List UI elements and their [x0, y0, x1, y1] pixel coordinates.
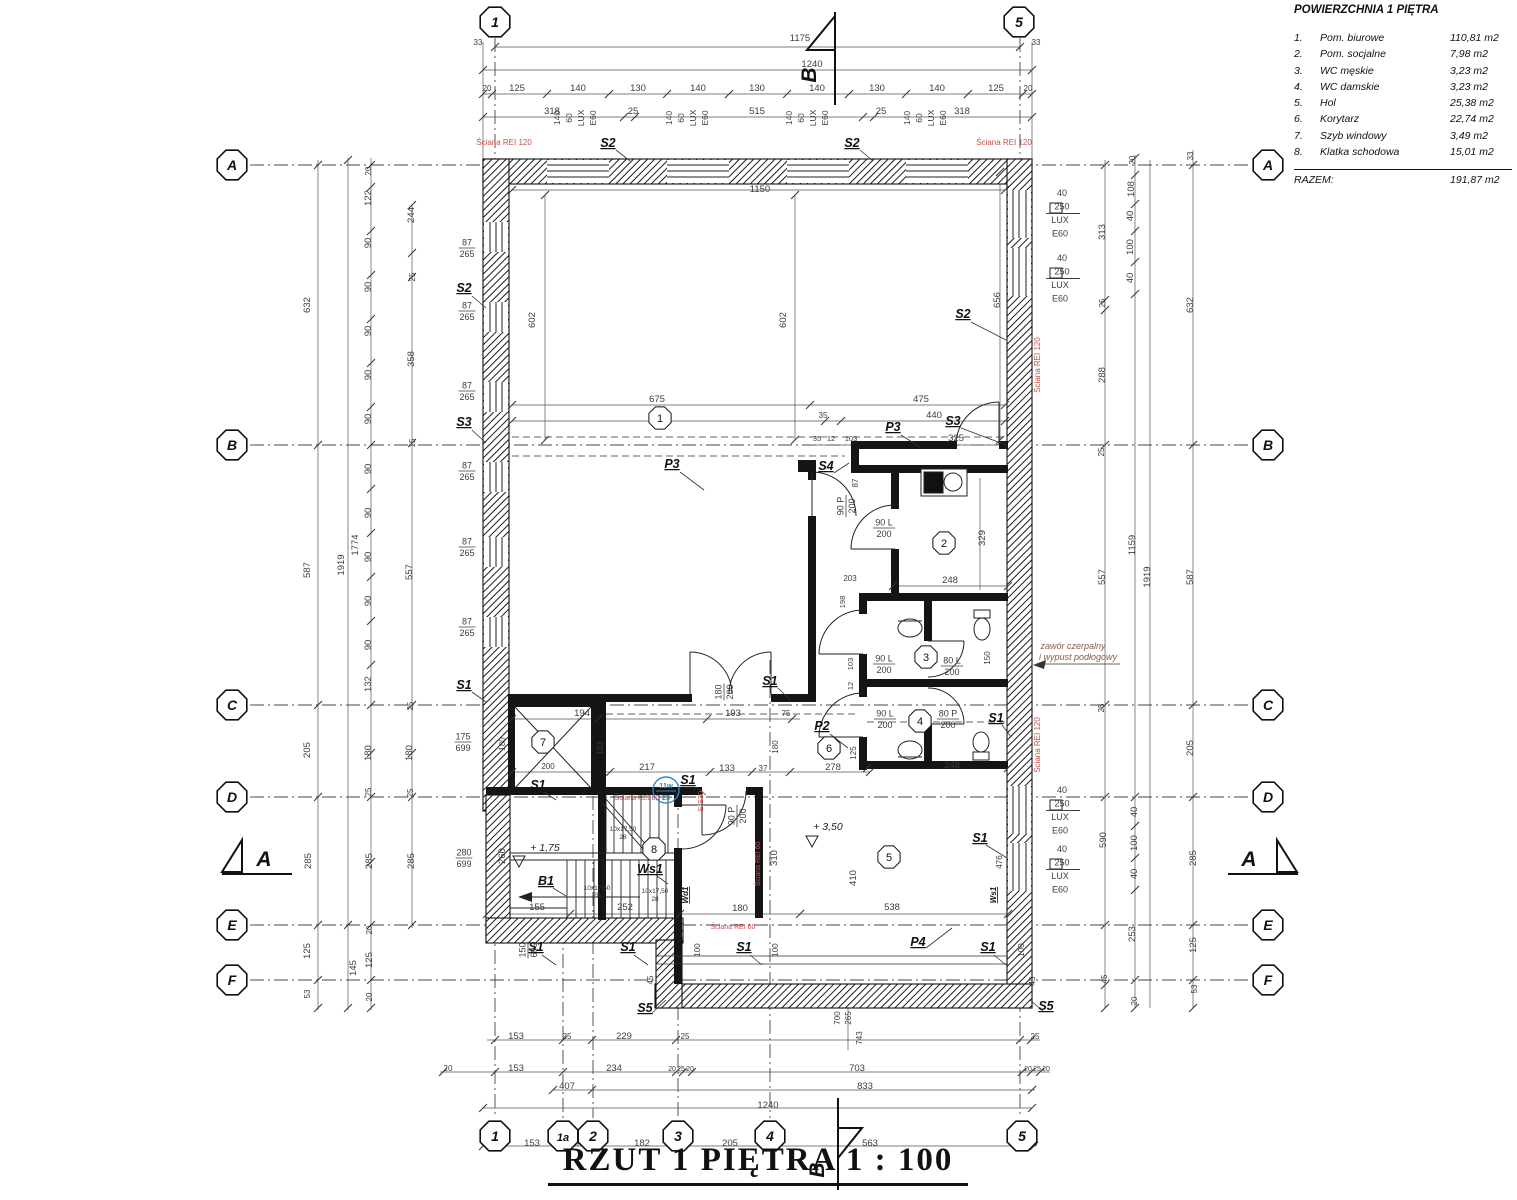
stair-note-text: 10x17,50	[610, 826, 637, 833]
dim-text: 260	[497, 848, 508, 864]
dim-text: 20	[668, 1066, 676, 1073]
fraction-top: 90 P	[727, 807, 737, 826]
dim-text: 410	[848, 870, 859, 886]
fire-rating-text: Ściana REI 60	[711, 922, 756, 931]
dim-text: 632	[1185, 297, 1196, 313]
dim-text: 25	[406, 788, 415, 797]
dim-text: 90	[363, 640, 374, 651]
dim-text: 100	[771, 943, 780, 957]
fraction-top: 87	[462, 381, 472, 391]
dim-text: 100	[1125, 239, 1136, 255]
fraction-bottom: 200	[876, 665, 891, 675]
annotation-notes: zawór czerpalnyi wypust podłogowy	[1039, 641, 1118, 662]
dim-text: 325	[948, 433, 964, 444]
dim-text: 90	[363, 508, 374, 519]
dim-text: 90	[363, 596, 374, 607]
legend-row: 4.WC damskie3,23 m2	[1294, 79, 1512, 95]
dim-text: 35	[819, 411, 828, 420]
dim-text: 193	[725, 708, 741, 719]
dim-text: 310	[769, 850, 780, 866]
washbasin-wc3	[898, 619, 922, 637]
dim-text: 20	[365, 992, 374, 1001]
dim-text: 40	[1125, 273, 1136, 284]
component-label: S1	[762, 674, 777, 688]
grid-marker-label: C	[227, 697, 238, 713]
dim-text: 1175	[790, 33, 810, 44]
dim-text: 145	[348, 960, 359, 976]
level-mark-text: + 3,50	[813, 821, 843, 833]
dim-text: 180	[363, 745, 374, 761]
window-spec-text: E60	[1052, 885, 1068, 895]
fraction-bottom: 699	[455, 743, 470, 753]
dim-text: 20	[686, 1066, 694, 1073]
fraction-top: 175	[455, 732, 470, 742]
fraction-top: 180	[714, 684, 724, 699]
dim-text: 285	[303, 853, 314, 869]
dim-text: 40	[1129, 869, 1140, 880]
component-label: S1	[972, 831, 987, 845]
dim-text: 12	[846, 682, 855, 690]
dim-text: 20	[1024, 1066, 1032, 1073]
grid-marker-label: D	[1263, 789, 1273, 805]
dim-text: 248	[942, 575, 958, 586]
dim-text: 602	[527, 312, 538, 328]
dim-text: 90	[363, 370, 374, 381]
dim-text: 45	[1100, 974, 1109, 983]
grid-marker-label: A	[1262, 157, 1273, 173]
component-label: S1	[736, 940, 751, 954]
dim-text: 180	[498, 737, 507, 751]
dim-text: 45	[646, 975, 655, 984]
dim-text: 37	[759, 764, 768, 773]
fraction-label: 150699	[518, 942, 540, 959]
dim-text: 103	[596, 741, 605, 755]
grid-marker-label: 5	[1015, 14, 1023, 30]
fraction-top: 87	[462, 238, 472, 248]
fraction-label: 175699	[455, 732, 472, 754]
legend-total-row: RAZEM: 191,87 m2	[1294, 169, 1512, 186]
fraction-top: 87	[462, 461, 472, 471]
fraction-top: 90 L	[876, 709, 894, 719]
room-number: 4	[917, 716, 923, 728]
grid-marker-label: E	[1263, 917, 1273, 933]
dim-text: 20	[365, 925, 374, 934]
dim-text: 557	[404, 564, 415, 580]
dim-text: 1240	[757, 1100, 778, 1111]
fraction-label: 90 L200	[873, 654, 895, 676]
fire-rating-text: Ściana REI 120	[976, 138, 1032, 147]
fraction-top: 90 P	[836, 497, 846, 516]
window-spec-text: 60	[564, 113, 574, 123]
section-marker-label: B	[798, 67, 821, 82]
dim-text: 25	[876, 106, 887, 117]
dim-text: 125	[988, 83, 1004, 94]
component-label: S1	[620, 940, 635, 954]
fraction-label: 80 L200	[941, 656, 963, 678]
dim-text: 25	[1033, 1066, 1041, 1073]
dim-text: 700	[833, 1011, 842, 1025]
fraction-bottom: 200	[940, 720, 955, 730]
window-spec-text: E60	[700, 110, 710, 125]
window-spec-text: E60	[588, 110, 598, 125]
window-spec-text: E60	[1052, 229, 1068, 239]
fraction-bottom: 200	[944, 667, 959, 677]
component-label: P3	[885, 420, 900, 434]
fraction-label: 90 L200	[874, 709, 896, 731]
dim-text: 25	[406, 701, 415, 710]
dim-text: 476	[995, 855, 1004, 869]
dim-text: 833	[857, 1081, 873, 1092]
dim-text: 25	[1097, 703, 1106, 712]
dim-text: 675	[649, 394, 665, 405]
lux-window-labels: 14060LUXE6014060LUXE6014060LUXE6014060LU…	[552, 109, 1080, 894]
component-label: Wd1	[681, 886, 690, 903]
legend-row: 3.WC męskie3,23 m2	[1294, 63, 1512, 79]
dim-text: 90	[363, 282, 374, 293]
washbasin-wc4	[898, 741, 922, 759]
floor-plan-drawing: 3311753312402012514013014013014013014012…	[0, 0, 1517, 1200]
stair-note-text: 10x17,50	[642, 888, 669, 895]
dim-text: 20	[1128, 155, 1137, 164]
legend-row: 5.Hol25,38 m2	[1294, 95, 1512, 111]
dim-text: 12	[827, 434, 835, 443]
component-label: S2	[955, 307, 970, 321]
fraction-label: 87265	[459, 301, 476, 323]
dim-text: 229	[616, 1031, 632, 1042]
component-label: P2	[814, 719, 829, 733]
fraction-top: 90 L	[875, 518, 893, 528]
dim-text: 244	[406, 207, 417, 223]
window-spec-text: 40	[1057, 188, 1067, 198]
dim-text: 53	[303, 989, 312, 998]
component-label: S1	[680, 773, 695, 787]
dim-text: 130	[869, 83, 885, 94]
component-label: Ws1	[989, 886, 998, 903]
component-label: S1	[980, 940, 995, 954]
stair-count-top: 11w	[659, 781, 673, 790]
dim-text: 90	[363, 326, 374, 337]
dim-text: 25	[364, 787, 373, 796]
dim-text: 318	[954, 106, 970, 117]
window-spec-text: 60	[676, 113, 686, 123]
dim-text: 90	[363, 238, 374, 249]
stair-note-text: 28	[651, 896, 659, 903]
legend-total-value: 191,87 m2	[1450, 174, 1512, 186]
dim-text: 205	[302, 742, 313, 758]
window-spec-text: 60	[796, 113, 806, 123]
dim-text: 40	[1129, 807, 1140, 818]
window-spec-text: 250	[1054, 202, 1069, 212]
dim-text: 140	[809, 83, 825, 94]
component-label: S4	[818, 459, 833, 473]
beam-lines	[657, 956, 1008, 964]
level-mark-text: + 1,75	[530, 842, 560, 854]
window-spec-text: LUX	[926, 109, 936, 126]
dim-text: 407	[559, 1081, 575, 1092]
component-label: S2	[600, 136, 615, 150]
dim-text: 285	[1188, 850, 1199, 866]
fraction-top: 87	[462, 301, 472, 311]
dim-text: 25	[628, 106, 639, 117]
dim-text: 20	[364, 166, 373, 175]
legend-row: 2.Pom. socjalne7,98 m2	[1294, 46, 1512, 62]
dim-text: 103	[846, 658, 855, 671]
dim-text: 125	[509, 83, 525, 94]
fraction-bottom: 265	[459, 312, 474, 322]
dim-text: 602	[778, 312, 789, 328]
dim-text: 20	[1042, 1066, 1050, 1073]
fraction-label: 90 P200	[727, 805, 749, 827]
dim-text: 25	[408, 272, 417, 281]
window-spec-text: 250	[1054, 858, 1069, 868]
dim-text: 180	[771, 740, 780, 754]
fraction-bottom: 200	[725, 684, 735, 699]
fraction-bottom: 200	[876, 529, 891, 539]
room-number: 6	[826, 743, 832, 755]
dim-text: 33	[1186, 151, 1195, 160]
dim-text: 130	[749, 83, 765, 94]
toilet-tank-wc4	[973, 752, 989, 760]
note-text: zawór czerpalny	[1039, 641, 1106, 651]
dim-text: 590	[1098, 832, 1109, 848]
dim-text: 100	[1017, 943, 1026, 957]
dim-text: 285	[406, 853, 417, 869]
dim-text: 180	[404, 745, 415, 761]
component-label: Ws1	[637, 862, 663, 876]
dim-text: 20	[483, 84, 492, 93]
window-spec-text: 250	[1054, 799, 1069, 809]
fire-rating-text: Ściana REI 60	[753, 842, 762, 887]
legend-row: 6.Korytarz22,74 m2	[1294, 111, 1512, 127]
dim-text: 234	[606, 1063, 622, 1074]
note-text: i wypust podłogowy	[1039, 652, 1118, 662]
dim-text: 35	[813, 434, 821, 443]
dim-text: 40	[1125, 211, 1136, 222]
dim-text: 140	[929, 83, 945, 94]
dim-text: 265	[844, 1011, 853, 1025]
grid-marker-label: C	[1263, 697, 1274, 713]
dim-text: 130	[630, 83, 646, 94]
fraction-bottom: 699	[456, 859, 471, 869]
legend-row: 7.Szyb windowy3,49 m2	[1294, 128, 1512, 144]
toilet-bowl-wc3	[974, 618, 990, 640]
window-spec-text: 140	[664, 111, 674, 125]
component-label: S3	[456, 415, 471, 429]
fraction-label: 87265	[459, 461, 476, 483]
grid-marker-label: F	[1264, 972, 1273, 988]
grid-marker-label: D	[227, 789, 237, 805]
fraction-bottom: 265	[459, 249, 474, 259]
dim-text: 87	[851, 478, 860, 487]
room-number: 8	[651, 844, 657, 856]
grid-marker-label: 1	[491, 1128, 499, 1144]
window-spec-text: 250	[1054, 267, 1069, 277]
section-marker-label: A	[255, 848, 271, 871]
grid-marker-label: B	[227, 437, 237, 453]
window-spec-text: 140	[902, 111, 912, 125]
legend-row: 8.Klatka schodowa15,01 m2	[1294, 144, 1512, 160]
dim-text: 125	[302, 943, 313, 959]
component-label: S1	[530, 778, 545, 792]
dim-text: 252	[617, 902, 633, 913]
fraction-bottom: 265	[459, 472, 474, 482]
fraction-label: 90 P200	[836, 495, 858, 517]
dim-text: 180	[732, 903, 748, 914]
dim-text: 217	[639, 762, 655, 773]
dim-text: 198	[838, 596, 847, 609]
stair-count-bottom: 25	[662, 793, 670, 802]
dim-text: 440	[926, 410, 942, 421]
dim-text: 205	[1185, 740, 1196, 756]
fire-rating-text: Ściana REI 120	[476, 138, 532, 147]
dim-text: 100	[693, 943, 702, 957]
window-spec-text: LUX	[808, 109, 818, 126]
dim-text: 133	[719, 763, 735, 774]
legend-title: POWIERZCHNIA 1 PIĘTRA	[1294, 4, 1512, 16]
dim-text: 25	[1031, 1032, 1040, 1041]
dim-text: 25	[1098, 298, 1107, 307]
dim-text: 1919	[336, 554, 347, 575]
component-label: B1	[538, 874, 554, 888]
window-spec-text: E60	[938, 110, 948, 125]
grid-marker-label: F	[228, 972, 237, 988]
fraction-top: 80 L	[943, 656, 961, 666]
dim-text: 475	[913, 394, 929, 405]
window-spec-text: 40	[1057, 785, 1067, 795]
dim-text: 53	[1190, 984, 1199, 993]
window-spec-text: 140	[552, 111, 562, 125]
fraction-bottom: 200	[738, 808, 748, 823]
grid-marker-label: 5	[1018, 1128, 1026, 1144]
dim-text: 656	[992, 292, 1003, 308]
dim-text: 122	[363, 190, 374, 206]
dim-text: 155	[529, 902, 545, 913]
room-number: 1	[657, 413, 663, 425]
dim-text: 278	[825, 762, 841, 773]
fraction-label: 87265	[459, 238, 476, 260]
dim-text: 108	[1126, 181, 1137, 197]
dim-text: 200	[541, 762, 555, 771]
windows	[484, 160, 1062, 891]
fraction-label: 90 L200	[873, 518, 895, 540]
window-spec-text: 60	[914, 113, 924, 123]
dim-text: 140	[570, 83, 586, 94]
dim-text: 1159	[1127, 535, 1138, 555]
fraction-top: 87	[462, 617, 472, 627]
dim-text: 632	[302, 297, 313, 313]
area-legend: POWIERZCHNIA 1 PIĘTRA 1.Pom. biurowe110,…	[1294, 4, 1512, 186]
grid-marker-label: A	[226, 157, 237, 173]
dimension-texts: 3311753312402012514013014013014013014012…	[302, 33, 1199, 1149]
fraction-label: 180200	[714, 684, 736, 701]
room-number: 2	[941, 538, 947, 550]
dim-text: 90	[363, 414, 374, 425]
dim-text: 15	[408, 438, 417, 447]
dim-text: 153	[508, 1063, 524, 1074]
grid-marker-label: 1	[491, 14, 499, 30]
dim-text: 194	[574, 708, 590, 719]
dim-text: 125	[1188, 937, 1199, 953]
fire-rating-text: Ściana REI 120	[1033, 337, 1042, 393]
dim-text: 33	[474, 38, 483, 47]
dim-text: 90	[363, 552, 374, 563]
dim-text: 515	[749, 106, 765, 117]
component-label: S2	[844, 136, 859, 150]
fraction-bottom: 200	[877, 720, 892, 730]
dim-text: 253	[1127, 926, 1138, 942]
component-label: S1	[988, 711, 1003, 725]
fraction-bottom: 265	[459, 392, 474, 402]
fire-rating-text: EIS30	[696, 791, 705, 811]
fraction-label: 87265	[459, 381, 476, 403]
legend-rows: 1.Pom. biurowe110,81 m22.Pom. socjalne7,…	[1294, 30, 1512, 160]
dim-text: 90	[363, 464, 374, 475]
dim-text: 25	[681, 1032, 690, 1041]
dim-text: 140	[690, 83, 706, 94]
component-label: P3	[664, 457, 679, 471]
fraction-label: 280699	[456, 848, 473, 870]
fraction-label: 87265	[459, 617, 476, 639]
dim-text: 75	[782, 709, 791, 718]
fire-rating-text: Ściana REI 60	[615, 793, 660, 802]
fraction-label: 87265	[459, 537, 476, 559]
drawing-title: RZUT 1 PIĘTRA 1 : 100	[548, 1142, 968, 1186]
window-spec-text: E60	[820, 110, 830, 125]
floor-plan-canvas: { "title": {"text": "RZUT 1 PIĘTRA 1 : 1…	[0, 0, 1517, 1200]
window-spec-text: LUX	[688, 109, 698, 126]
window-spec-text: LUX	[1051, 215, 1069, 225]
dim-text: 33	[1032, 38, 1041, 47]
fraction-bottom: 200	[847, 498, 857, 513]
window-spec-text: E60	[1052, 826, 1068, 836]
dim-text: 1774	[350, 534, 361, 555]
dim-text: 358	[406, 351, 417, 367]
room-number: 5	[886, 852, 892, 864]
stair-note-text: 28	[593, 892, 601, 899]
toilet-bowl-wc4	[973, 732, 989, 752]
legend-total-label: RAZEM:	[1294, 174, 1450, 186]
component-label: S2	[456, 281, 471, 295]
dim-text: 248	[944, 760, 960, 771]
dim-text: 587	[1185, 569, 1196, 585]
fraction-top: 87	[462, 537, 472, 547]
dim-text: 25	[677, 1066, 685, 1073]
fraction-bottom: 265	[459, 548, 474, 558]
dim-text: 20	[1024, 84, 1033, 93]
window-spec-text: LUX	[1051, 871, 1069, 881]
room-number: 7	[540, 737, 546, 749]
fire-rating-text: Ściana REI 120	[1033, 717, 1042, 773]
grid-marker-label: E	[227, 917, 237, 933]
window-spec-text: 140	[784, 111, 794, 125]
dim-text: 288	[1097, 367, 1108, 383]
stair-note-text: 10x17,50	[584, 885, 611, 892]
component-label: P4	[910, 935, 925, 949]
fraction-bottom: 699	[529, 942, 539, 957]
window-spec-text: LUX	[576, 109, 586, 126]
dim-text: 153	[524, 1138, 540, 1149]
dim-text: 1150	[750, 184, 770, 195]
dim-text: 150	[983, 651, 992, 665]
window-spec-text: 40	[1057, 253, 1067, 263]
component-label: S1	[456, 678, 471, 692]
fraction-bottom: 265	[459, 628, 474, 638]
dim-text: 20	[444, 1064, 453, 1073]
component-label: S3	[945, 414, 960, 428]
legend-row: 1.Pom. biurowe110,81 m2	[1294, 30, 1512, 46]
dim-text: 587	[302, 562, 313, 578]
dim-text: 153	[508, 1031, 524, 1042]
